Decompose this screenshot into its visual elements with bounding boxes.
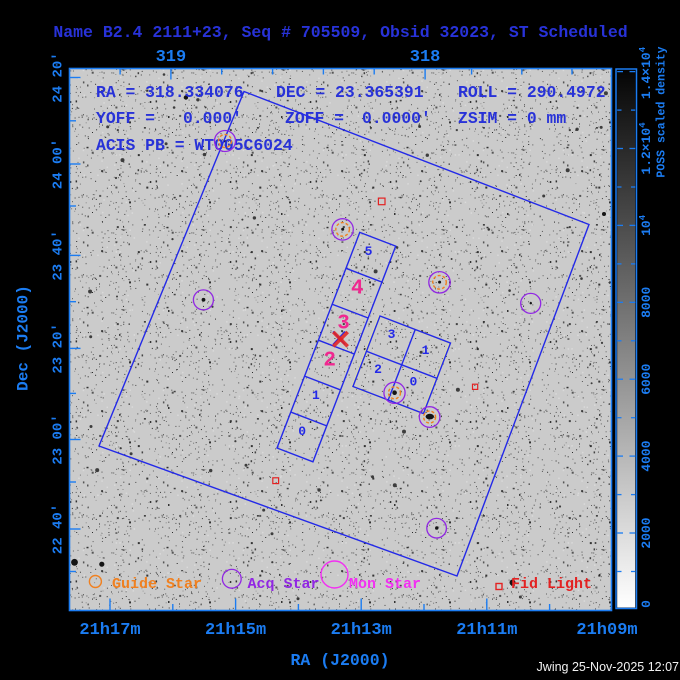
svg-text:1: 1 <box>422 343 430 358</box>
svg-text:Name B2.4 2111+23, Seq # 70550: Name B2.4 2111+23, Seq # 705509, Obsid 3… <box>53 23 627 42</box>
svg-text:1.4×104: 1.4×104 <box>638 46 654 99</box>
svg-text:23 40': 23 40' <box>51 230 67 280</box>
svg-text:319: 319 <box>156 48 187 67</box>
svg-text:Dec (J2000): Dec (J2000) <box>15 285 33 391</box>
svg-text:RA = 318.334076: RA = 318.334076 <box>96 83 244 102</box>
svg-text:0.0000': 0.0000' <box>362 109 431 128</box>
svg-text:4000: 4000 <box>639 440 654 471</box>
svg-text:21h17m: 21h17m <box>79 621 140 640</box>
svg-text:3: 3 <box>388 327 396 342</box>
svg-text:6000: 6000 <box>639 363 654 394</box>
svg-text:21h11m: 21h11m <box>456 621 517 640</box>
svg-text:Guide Star: Guide Star <box>112 576 202 593</box>
svg-text:1: 1 <box>312 388 320 403</box>
svg-text:23 00': 23 00' <box>51 414 67 464</box>
svg-text:1.2×104: 1.2×104 <box>638 122 654 175</box>
svg-text:ACIS PB = WT005C6024: ACIS PB = WT005C6024 <box>96 136 293 155</box>
svg-text:2: 2 <box>323 349 336 372</box>
svg-text:2000: 2000 <box>639 517 654 548</box>
svg-text:0: 0 <box>639 600 654 608</box>
svg-text:21h15m: 21h15m <box>205 621 266 640</box>
svg-text:ZSIM = 0 mm: ZSIM = 0 mm <box>458 109 566 128</box>
svg-text:ROLL = 290.4972: ROLL = 290.4972 <box>458 83 606 102</box>
svg-text:22 40': 22 40' <box>51 504 67 554</box>
svg-text:0: 0 <box>409 375 417 390</box>
svg-text:POSS scaled density: POSS scaled density <box>656 46 669 177</box>
svg-text:21h13m: 21h13m <box>331 621 392 640</box>
svg-text:Fid Light: Fid Light <box>511 576 592 593</box>
svg-text:DEC = 23.365391: DEC = 23.365391 <box>276 83 424 102</box>
svg-text:3: 3 <box>337 312 350 335</box>
svg-text:318: 318 <box>410 48 441 67</box>
svg-text:Mon Star: Mon Star <box>349 576 421 593</box>
svg-text:Jwing 25-Nov-2025 12:07: Jwing 25-Nov-2025 12:07 <box>537 660 679 674</box>
svg-text:RA (J2000): RA (J2000) <box>290 651 389 670</box>
svg-text:5: 5 <box>365 244 373 259</box>
svg-text:4: 4 <box>351 278 364 301</box>
svg-text:23 20': 23 20' <box>51 323 67 373</box>
svg-text:8000: 8000 <box>639 287 654 318</box>
svg-text:0: 0 <box>298 424 306 439</box>
svg-text:2: 2 <box>374 362 382 377</box>
svg-text:21h09m: 21h09m <box>576 621 637 640</box>
svg-text:YOFF =: YOFF = <box>96 109 155 128</box>
svg-text:24 20': 24 20' <box>51 52 67 102</box>
svg-text:Acq Star: Acq Star <box>248 576 320 593</box>
svg-text:24 00': 24 00' <box>51 139 67 189</box>
